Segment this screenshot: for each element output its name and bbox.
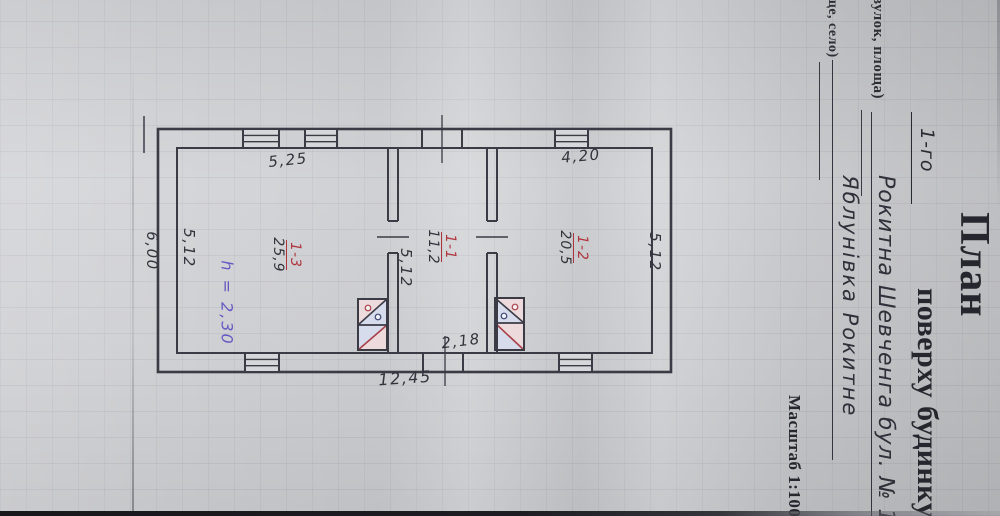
dim-left-outer: 6,00 (143, 231, 161, 270)
fraction-bar (286, 240, 287, 270)
dim-right-room-side: 5,12 (646, 232, 664, 271)
floor-value-handwritten: 1-го (916, 128, 938, 173)
room-area: 11,2 (426, 229, 440, 264)
stove-right-room-icon (495, 298, 524, 350)
dim-vestibule-side: 5,12 (397, 248, 415, 287)
room-area: 25,9 (271, 237, 285, 272)
room-label-1-1: 1-1 11,2 (426, 227, 456, 267)
window-bottom-1 (245, 353, 279, 372)
window-top-2 (305, 129, 337, 148)
scale-label: Масштаб 1:100 (784, 395, 804, 516)
scan-bottom-edge (0, 511, 1000, 516)
ceiling-height-note: h = 2,30 (218, 260, 237, 345)
form-title: План (950, 212, 998, 317)
window-top-1 (243, 129, 279, 148)
room-number: 1-1 (443, 234, 456, 260)
room-label-1-3: 1-3 25,9 (271, 235, 301, 275)
settlement-value-handwritten: Яблунівка Рокитне (838, 175, 862, 417)
dim-total-width: 12,45 (378, 367, 433, 390)
room-number: 1-3 (288, 242, 301, 268)
settlement-label-fragment: ще, село) (824, 0, 840, 58)
fraction-bar (573, 233, 574, 263)
street-value-handwritten: Рокитна Шевченга бул. № 11 (873, 175, 898, 516)
dim-left-room-side: 5,12 (180, 228, 198, 267)
scanned-floor-plan-page: 5,25 4,20 6,00 5,12 5,12 5,12 2,18 12,45… (0, 0, 1000, 516)
room-label-1-2: 1-2 20,5 (558, 228, 588, 268)
room-area: 20,5 (558, 230, 572, 265)
window-top-3 (555, 129, 588, 148)
fraction-bar (441, 232, 442, 262)
title-block: План 1-го поверху будинку вулок, площа) … (770, 0, 1000, 516)
window-bottom-2 (559, 353, 592, 372)
dim-top-right-room: 4,20 (561, 145, 602, 166)
street-label-fragment: вулок, площа) (869, 0, 886, 99)
stove-left-room-icon (358, 299, 387, 350)
form-title-rest: поверху будинку (910, 288, 944, 516)
room-number: 1-2 (575, 235, 588, 261)
